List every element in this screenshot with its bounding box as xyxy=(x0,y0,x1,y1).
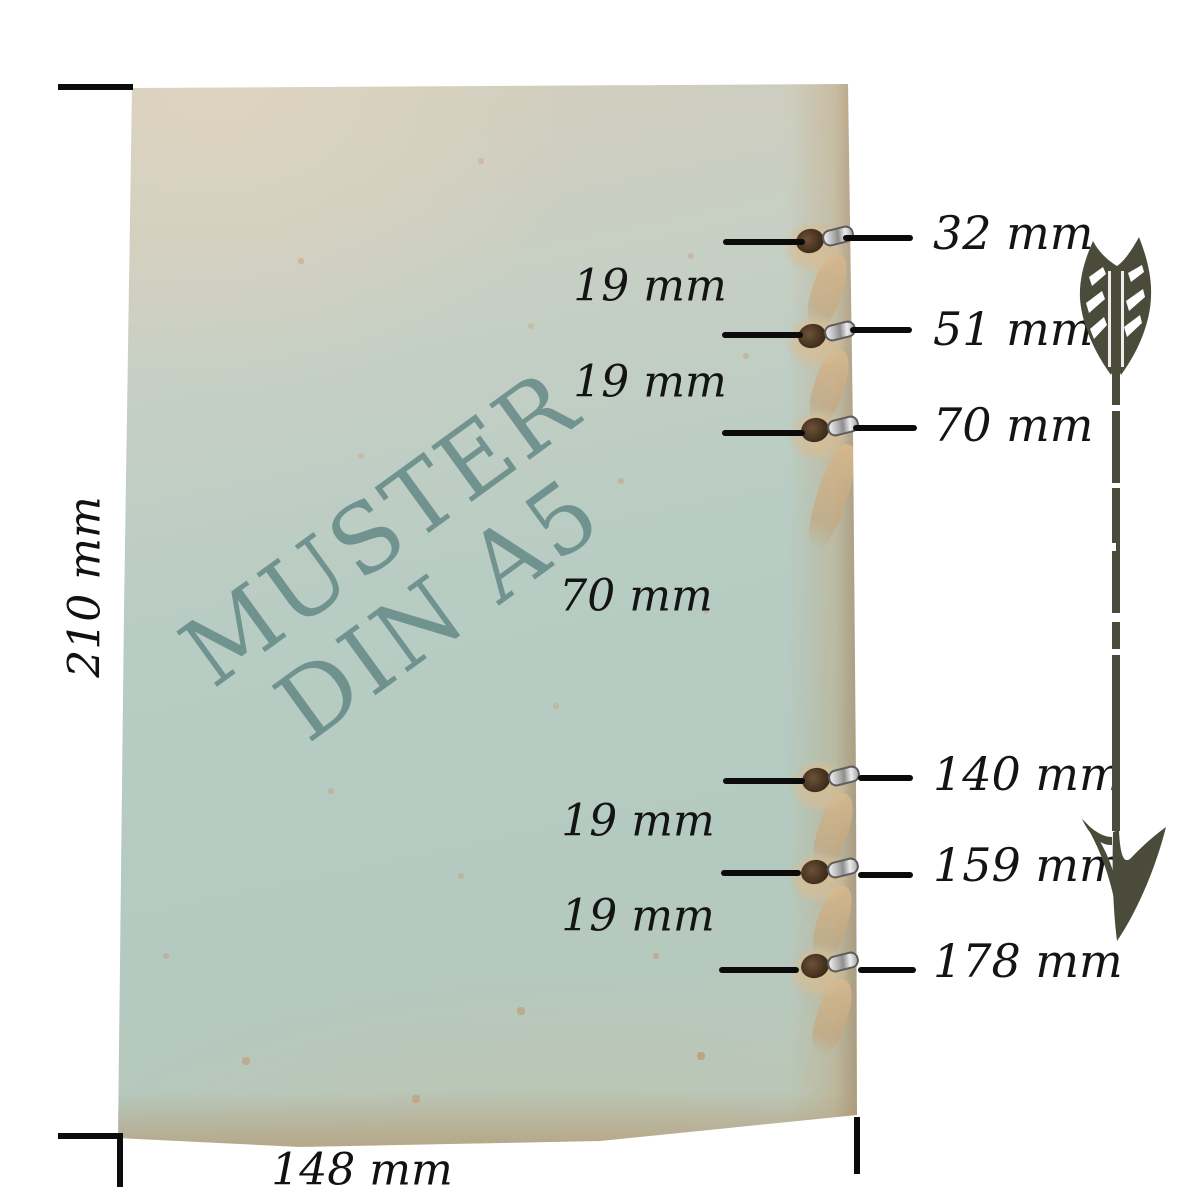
paper-torn-bottom-edge xyxy=(118,1092,858,1148)
callout-line-right-5 xyxy=(858,872,913,878)
width-dimension-label: 148 mm xyxy=(271,1145,452,1196)
paper-speckles xyxy=(0,0,2,2)
dim-corner-bottom-left-v xyxy=(117,1133,123,1187)
gap-label-3: 70 mm xyxy=(559,571,712,622)
callout-line-right-1 xyxy=(843,235,913,241)
gap-label-4: 19 mm xyxy=(561,796,714,847)
height-dimension-label: 210 mm xyxy=(60,496,111,677)
callout-line-right-3 xyxy=(853,425,917,431)
dim-tick-top-left xyxy=(58,84,133,90)
callout-line-left-2 xyxy=(722,332,803,338)
diagram-canvas: MUSTER DIN A5 32 mm 51 mm 70 mm 140 mm 1… xyxy=(0,0,1200,1200)
callout-line-left-1 xyxy=(723,239,805,245)
callout-line-right-6 xyxy=(858,967,916,973)
callout-line-left-4 xyxy=(723,778,805,784)
gap-label-2: 19 mm xyxy=(573,357,726,408)
callout-line-left-5 xyxy=(721,870,801,876)
gap-label-5: 19 mm xyxy=(561,891,714,942)
callout-line-left-6 xyxy=(719,967,799,973)
callout-line-left-3 xyxy=(722,430,805,436)
callout-line-right-4 xyxy=(858,775,913,781)
gap-label-1: 19 mm xyxy=(573,261,726,312)
dim-corner-bottom-left-h xyxy=(58,1133,122,1139)
dim-tick-bottom-right xyxy=(854,1117,860,1174)
callout-line-right-2 xyxy=(850,327,912,333)
down-arrow-icon xyxy=(1056,225,1176,955)
